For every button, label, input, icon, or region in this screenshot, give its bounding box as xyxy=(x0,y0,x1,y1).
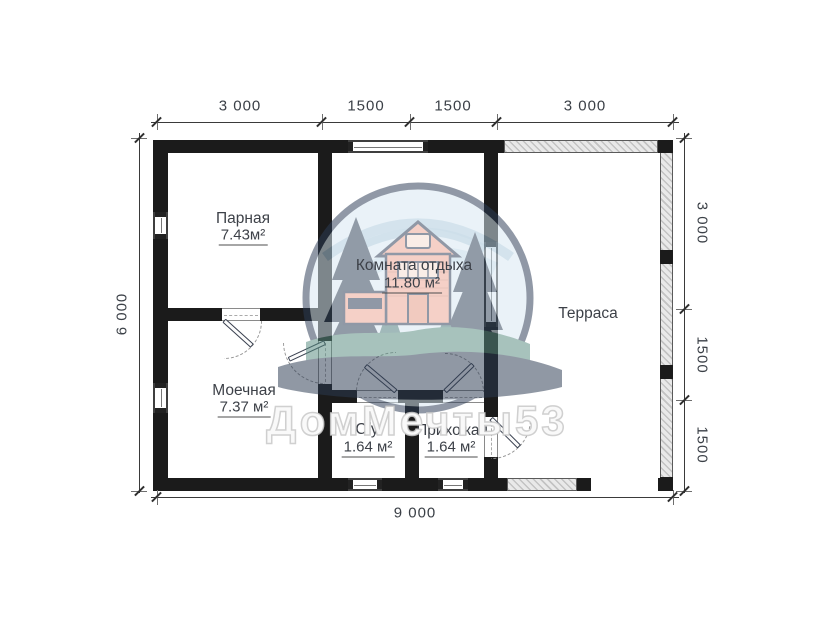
terrace-right-post-3 xyxy=(660,365,673,379)
terrace-wall-hatch-bottom xyxy=(507,478,577,491)
terrace-right-post-2 xyxy=(660,250,673,264)
terrace-bottom-post xyxy=(577,478,591,491)
window-top-lounge xyxy=(348,140,428,153)
room-area-komnata-otdyha: 11.80 м² xyxy=(382,275,442,294)
dim-line-top xyxy=(151,122,679,123)
window-moechnaya-left xyxy=(153,383,168,413)
room-label-parnaya: Парная xyxy=(216,210,270,228)
terrace-wall-hatch-top xyxy=(504,140,658,153)
window-parnaya-left xyxy=(153,212,168,239)
dim-line-right xyxy=(684,133,685,493)
dim-label-right-2: 1500 xyxy=(694,336,711,373)
wall-left-middle xyxy=(153,239,168,383)
room-label-komnata-otdyha: Комната отдыха xyxy=(356,257,472,275)
floor-plan-canvas: 3 000 1500 1500 3 000 9 000 6 000 3 000 … xyxy=(0,0,828,621)
room-area-parnaya: 7.43м² xyxy=(219,227,268,246)
watermark-text: ДомМечты53 xyxy=(266,397,567,445)
dim-line-left xyxy=(139,133,140,493)
dim-line-bottom xyxy=(151,497,679,498)
window-bottom-prihozhaya xyxy=(438,478,468,491)
dim-label-right-3: 1500 xyxy=(694,426,711,463)
wall-interior-2-lower xyxy=(484,457,498,491)
terrace-right-post-1 xyxy=(660,140,673,153)
dim-label-top-3: 1500 xyxy=(434,98,471,115)
dim-label-top-2: 1500 xyxy=(347,98,384,115)
wall-bottom-segment-2 xyxy=(382,478,438,491)
dim-label-top-1: 3 000 xyxy=(219,98,262,115)
window-bottom-su xyxy=(348,478,382,491)
dim-label-right-1: 3 000 xyxy=(694,202,711,245)
room-label-terrasa: Терраса xyxy=(558,305,617,323)
door-opening-parnaya xyxy=(222,308,260,321)
terrace-wall-hatch-right xyxy=(660,140,673,491)
terrace-right-post-4 xyxy=(660,477,673,491)
wall-top-right-segment xyxy=(428,140,504,153)
dim-label-bottom: 9 000 xyxy=(394,505,437,522)
dim-label-left: 6 000 xyxy=(114,293,131,336)
wall-parnaya-divider-left xyxy=(168,308,222,321)
dim-label-top-4: 3 000 xyxy=(564,98,607,115)
room-area-moechnaya: 7.37 м² xyxy=(218,399,271,418)
